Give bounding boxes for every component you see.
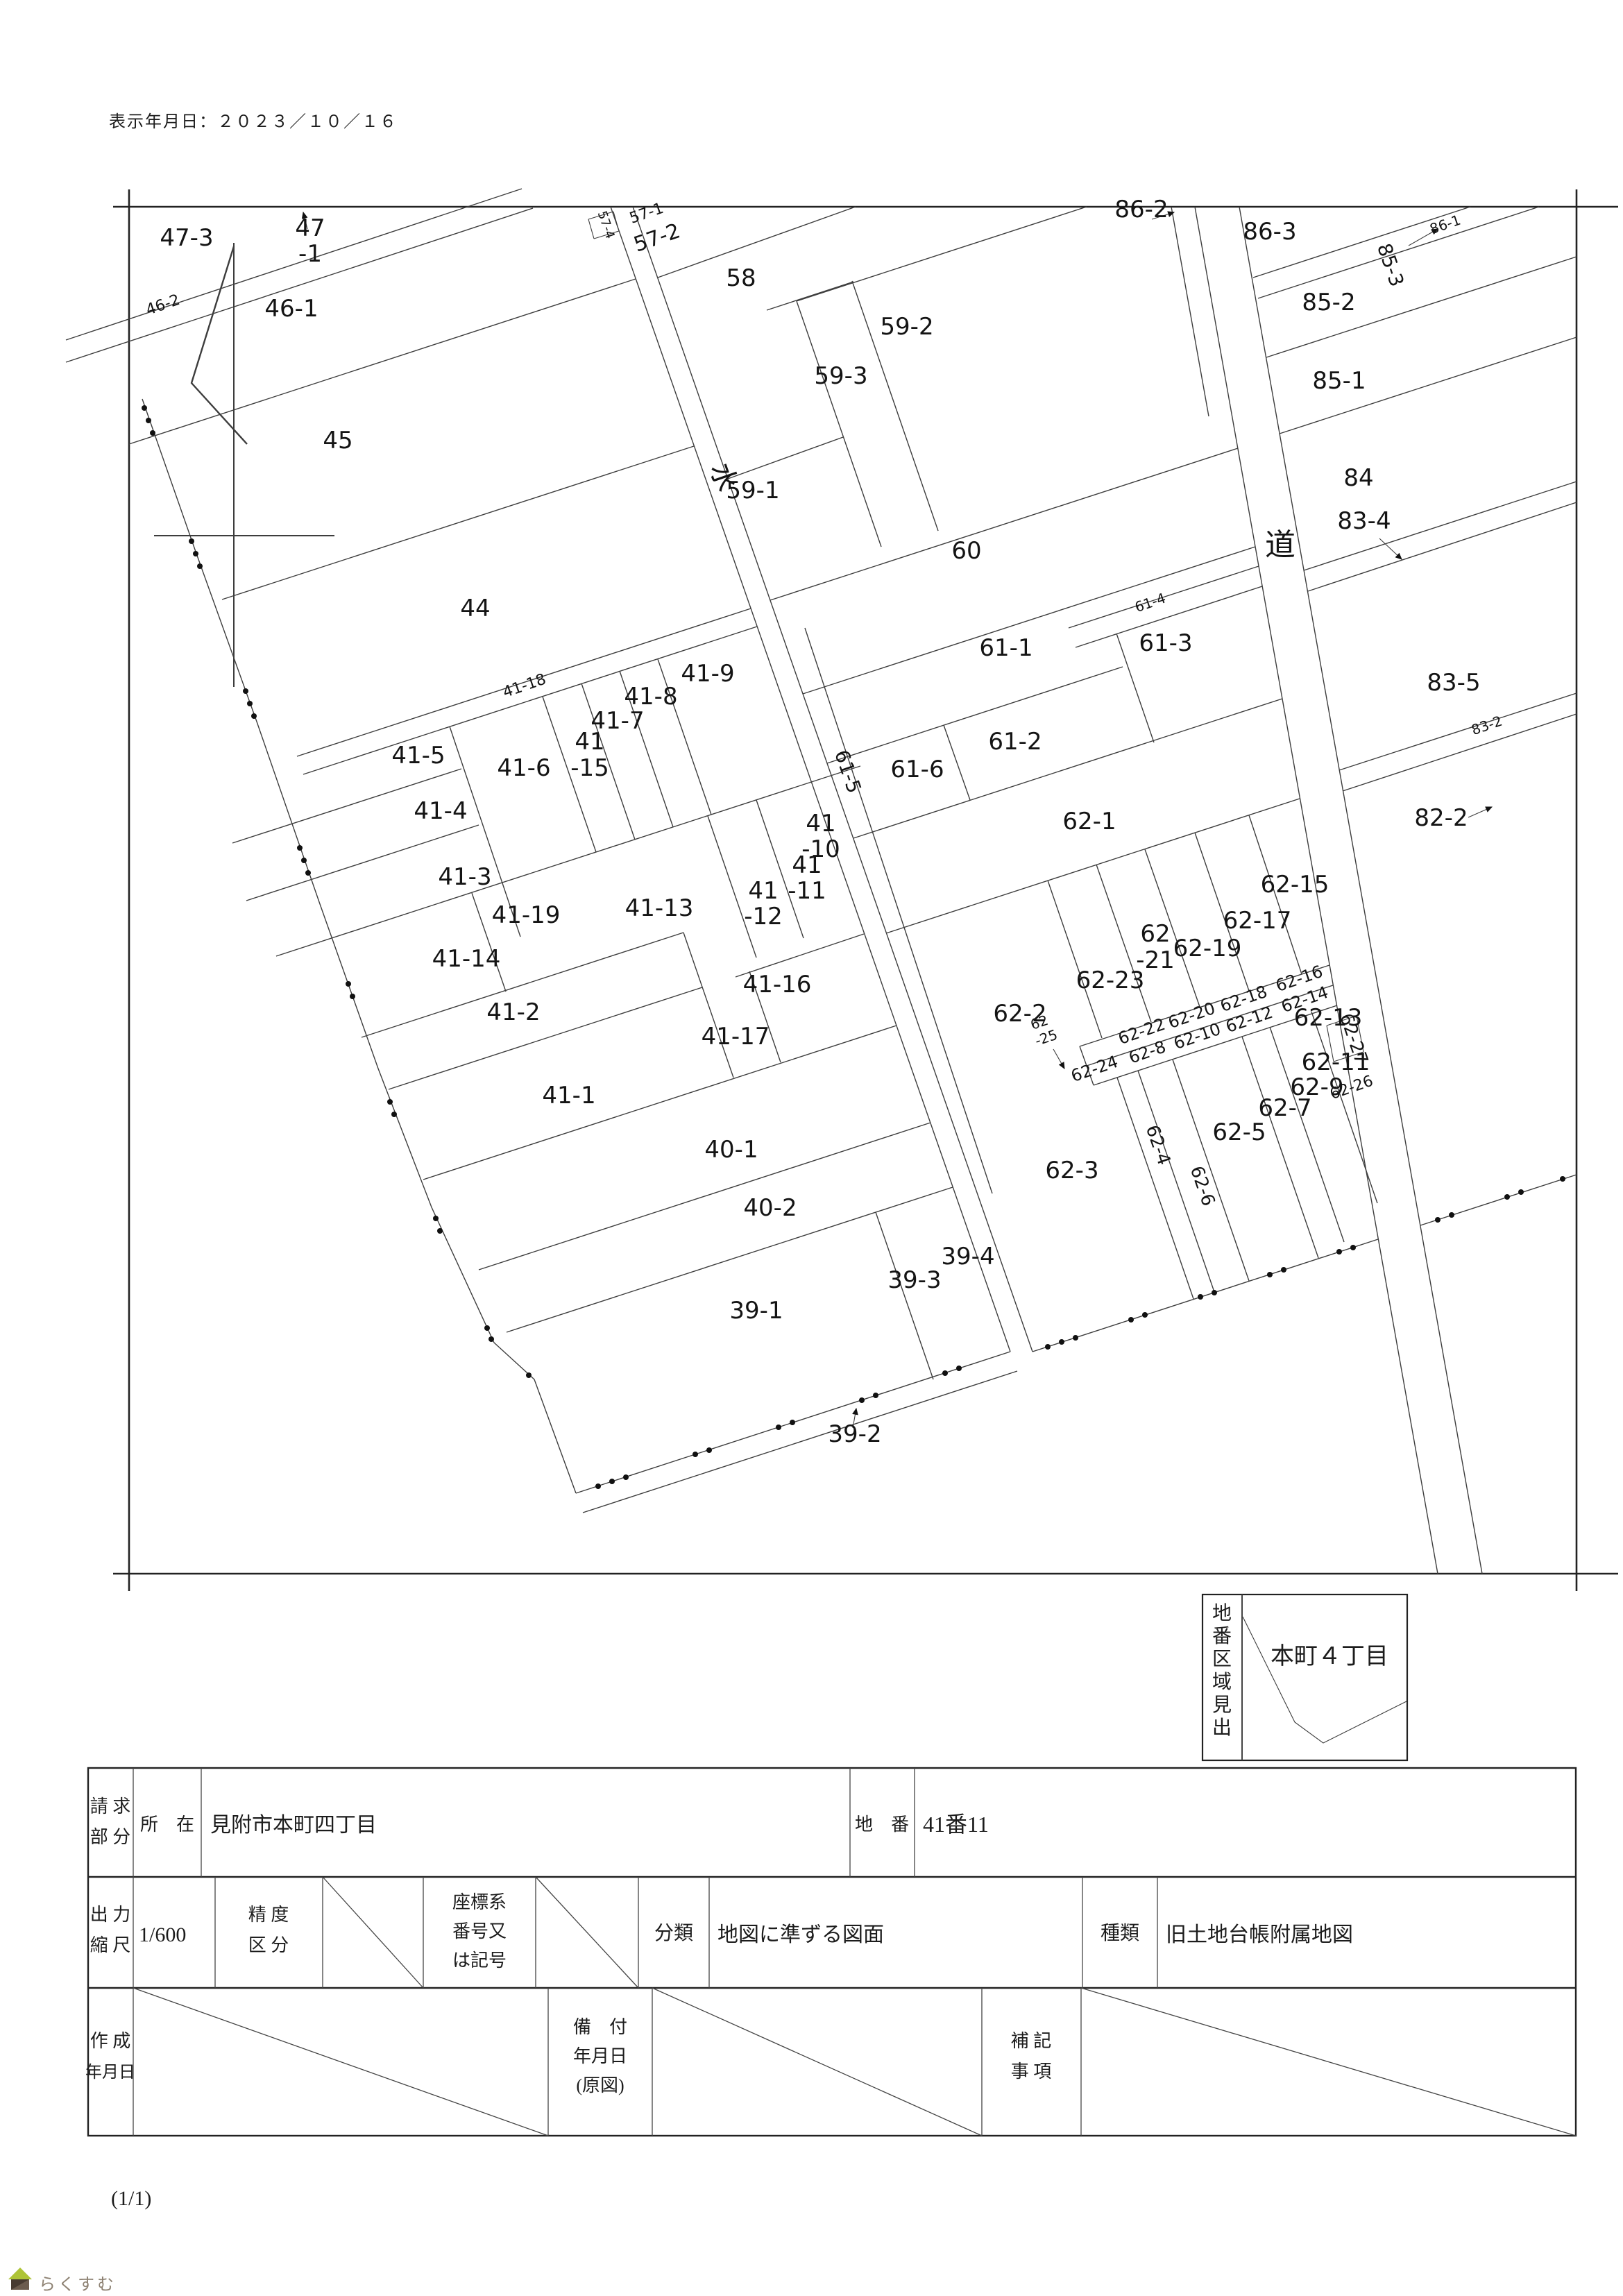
parcel-label: 85-1 (1312, 367, 1366, 395)
parcel-label: 61-5 (830, 747, 866, 796)
parcel-label: 41-14 (432, 945, 501, 973)
output-scale-label-1: 出 力 (90, 1905, 131, 1925)
coord-system-label-2: 番号又 (452, 1921, 507, 1941)
parcel-label: 61-2 (988, 728, 1042, 756)
precision-class-label-1: 精 度 (248, 1905, 289, 1925)
parcel-label: 62-11 (1302, 1048, 1370, 1076)
parcel-label: 41-1 (542, 1082, 595, 1109)
parcel-label: 83-2 (1469, 713, 1504, 738)
parcel-label: 83-4 (1337, 507, 1391, 535)
parcel-label: 59-2 (880, 313, 933, 341)
parcel-label: 41-4 (414, 797, 467, 825)
parcel-label: -1 (298, 240, 322, 268)
parcel-label: 41-5 (391, 742, 445, 769)
output-scale-value: 1/600 (139, 1923, 186, 1946)
parcel-label: -15 (570, 754, 609, 782)
parcel-number-value: 41番11 (923, 1812, 989, 1837)
brand-name: らくすむ (39, 2274, 117, 2294)
parcel-label: 39-2 (828, 1420, 881, 1448)
legend-title: 地番区域見出 (1212, 1601, 1232, 1739)
parcel-label: 62-5 (1212, 1119, 1266, 1146)
parcel-label: 86-3 (1243, 218, 1296, 246)
parcel-label: 84 (1343, 464, 1373, 492)
parcel-label: 47 (295, 214, 325, 242)
parcel-label: 61-1 (979, 634, 1033, 662)
parcel-label: 86-2 (1114, 196, 1168, 223)
parcel-label: 41-6 (497, 754, 550, 782)
supplementary-note-label-2: 事 項 (1011, 2061, 1052, 2082)
attached-date-label-3: (原図) (576, 2075, 624, 2095)
parcel-label: -12 (744, 903, 783, 930)
parcel-labels: 47-347-146-246-1454457-457-157-25859-259… (144, 196, 1504, 1448)
parcel-label: 45 (323, 427, 352, 454)
parcel-label: 39-4 (941, 1243, 994, 1270)
parcel-label: 85-2 (1302, 289, 1355, 316)
map-frame (113, 189, 1618, 1591)
boundary-dots (142, 405, 1565, 1489)
output-scale-label-2: 縮 尺 (90, 1935, 131, 1955)
coord-system-label-3: は記号 (452, 1950, 507, 1971)
kind-label: 種類 (1101, 1922, 1139, 1944)
parcel-label: 58 (726, 264, 756, 292)
request-section-label-1: 請 求 (90, 1796, 131, 1817)
parcel-label: 39-1 (729, 1297, 783, 1325)
page-number: (1/1) (111, 2187, 151, 2210)
parcel-label: 60 (951, 537, 981, 565)
coord-system-label-1: 座標系 (452, 1892, 507, 1912)
parcel-label: 61-4 (1132, 590, 1168, 615)
parcel-label: 道 (1265, 527, 1295, 563)
parcel-number-label: 地 番 (855, 1814, 909, 1835)
parcel-label: 39-3 (887, 1266, 941, 1294)
cadastral-map-page: 表示年月日：２０２３／１０／１６ (0, 0, 1623, 2296)
parcel-label: 41-13 (625, 894, 694, 922)
parcel-label: 57-1 (627, 200, 665, 228)
legend-area-name: 本町４丁目 (1271, 1642, 1388, 1670)
parcel-label: 41 (575, 728, 604, 756)
parcel-label: 59-3 (814, 362, 867, 390)
supplementary-note-label-1: 補 記 (1011, 2031, 1052, 2051)
parcel-label: 62-17 (1223, 907, 1292, 935)
parcel-label: 41-3 (438, 863, 491, 891)
legend-box: 地番区域見出 本町４丁目 (1203, 1595, 1407, 1760)
parcel-label: 62-24 (1069, 1052, 1121, 1086)
precision-class-label-2: 区 分 (248, 1935, 289, 1955)
footer-brand: らくすむ (8, 2268, 117, 2294)
classification-value: 地図に準ずる図面 (717, 1923, 884, 1946)
parcel-label: 85-3 (1373, 240, 1409, 289)
parcel-label: 62-3 (1045, 1157, 1098, 1184)
created-date-label-2: 年月日 (85, 2063, 135, 2082)
attached-date-label-1: 備 付 (573, 2017, 627, 2037)
parcel-label: 62-23 (1076, 967, 1145, 994)
created-date-label-1: 作 成 (90, 2031, 131, 2051)
parcel-label: 61-6 (890, 756, 944, 783)
attached-date-label-2: 年月日 (573, 2046, 627, 2066)
parcel-label: 46-1 (264, 295, 318, 323)
parcel-label: 40-2 (743, 1194, 797, 1222)
parcel-label: 40-1 (704, 1136, 758, 1164)
parcel-label: 44 (460, 595, 490, 622)
parcel-label: 47-3 (160, 224, 213, 252)
location-value: 見附市本町四丁目 (210, 1814, 377, 1837)
request-section-label-2: 部 分 (90, 1827, 131, 1847)
parcel-label: 41-17 (702, 1023, 770, 1051)
parcel-label: 83-5 (1427, 669, 1480, 697)
house-logo-icon (8, 2268, 32, 2290)
parcel-label: 41 (806, 810, 835, 837)
parcel-label: 41-8 (624, 683, 677, 711)
parcel-label: 46-2 (144, 291, 182, 319)
location-label: 所 在 (140, 1814, 194, 1835)
kind-value: 旧土地台帳附属地図 (1166, 1923, 1353, 1946)
parcel-label: 41 (748, 877, 778, 905)
parcel-label: 62-1 (1062, 808, 1116, 835)
parcel-label: -11 (788, 877, 826, 905)
parcel-label: 41-9 (681, 660, 734, 688)
parcel-label: 41-19 (492, 901, 561, 929)
display-date: 表示年月日：２０２３／１０／１６ (109, 112, 398, 131)
parcel-label: 41-16 (743, 971, 812, 998)
parcel-label: 62-19 (1173, 935, 1242, 962)
parcel-label: 41 (792, 851, 822, 879)
info-table: 請 求 部 分 所 在 見附市本町四丁目 地 番 41番11 出 力 縮 尺 1… (85, 1768, 1576, 2136)
parcel-label: 41-2 (486, 998, 540, 1026)
parcel-label: 82-2 (1414, 804, 1468, 832)
classification-label: 分類 (654, 1923, 693, 1944)
parcel-label: 62-6 (1186, 1164, 1219, 1209)
parcel-label: 62-15 (1261, 871, 1329, 899)
parcel-label: 61-3 (1139, 629, 1192, 657)
parcel-label: 62-7 (1258, 1094, 1311, 1122)
parcel-label: 62 (1140, 920, 1170, 948)
